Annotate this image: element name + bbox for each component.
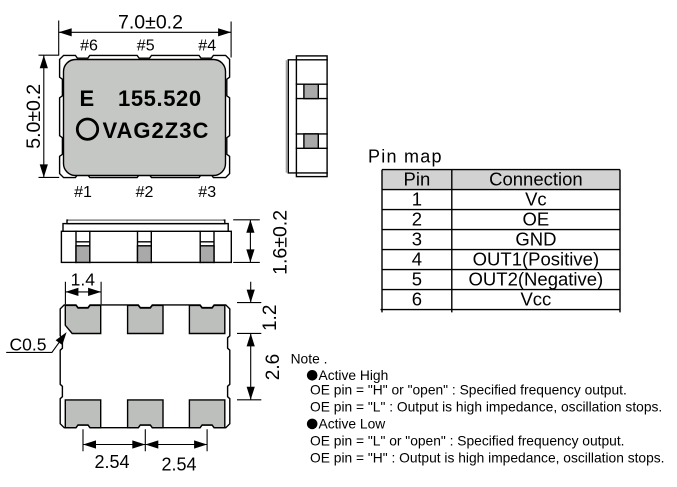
- svg-text:1.6±0.2: 1.6±0.2: [270, 210, 292, 275]
- svg-text:Note .: Note .: [291, 352, 328, 367]
- svg-text:155.520: 155.520: [118, 86, 202, 111]
- svg-text:OE: OE: [523, 209, 550, 230]
- svg-text:3: 3: [412, 229, 422, 250]
- svg-text:#5: #5: [137, 37, 155, 54]
- svg-text:1.2: 1.2: [260, 305, 281, 331]
- svg-text:C0.5: C0.5: [10, 335, 47, 355]
- svg-text:7.0±0.2: 7.0±0.2: [118, 12, 183, 34]
- svg-text:OE pin = "H" or "open" : Speci: OE pin = "H" or "open" : Specified frequ…: [310, 383, 627, 398]
- svg-text:GND: GND: [515, 229, 556, 250]
- svg-text:2.54: 2.54: [161, 455, 196, 475]
- svg-text:Active Low: Active Low: [319, 416, 386, 431]
- svg-text:E: E: [80, 86, 95, 111]
- svg-text:#6: #6: [80, 37, 98, 54]
- svg-text:6: 6: [412, 289, 422, 310]
- svg-text:2.54: 2.54: [94, 452, 129, 472]
- svg-text:OE pin = "L" : Output is high: OE pin = "L" : Output is high impedance,…: [310, 400, 662, 415]
- svg-text:OE pin = "L" or "open" : Speci: OE pin = "L" or "open" : Specified frequ…: [310, 433, 625, 448]
- svg-text:Pin: Pin: [404, 169, 431, 190]
- svg-text:#1: #1: [74, 184, 92, 201]
- svg-text:OUT1(Positive): OUT1(Positive): [473, 249, 599, 270]
- svg-text:1: 1: [412, 189, 422, 210]
- svg-text:Pin map: Pin map: [368, 146, 443, 166]
- svg-text:2: 2: [412, 209, 422, 230]
- svg-text:1.4: 1.4: [71, 270, 96, 290]
- svg-text:Vcc: Vcc: [520, 289, 551, 310]
- svg-text:OE pin = "H" : Output is high: OE pin = "H" : Output is high impedance,…: [310, 450, 665, 465]
- svg-text:5: 5: [412, 269, 422, 290]
- svg-text:Active High: Active High: [319, 368, 389, 383]
- svg-text:Connection: Connection: [489, 169, 583, 190]
- svg-text:VAG2Z3C: VAG2Z3C: [103, 118, 210, 143]
- svg-text:#3: #3: [198, 184, 216, 201]
- svg-text:2.6: 2.6: [263, 354, 284, 380]
- svg-text:Vc: Vc: [525, 189, 547, 210]
- svg-text:OUT2(Negative): OUT2(Negative): [469, 269, 604, 290]
- svg-text:4: 4: [412, 249, 422, 270]
- svg-text:5.0±0.2: 5.0±0.2: [23, 84, 45, 149]
- svg-text:#2: #2: [136, 184, 154, 201]
- svg-text:#4: #4: [198, 37, 216, 54]
